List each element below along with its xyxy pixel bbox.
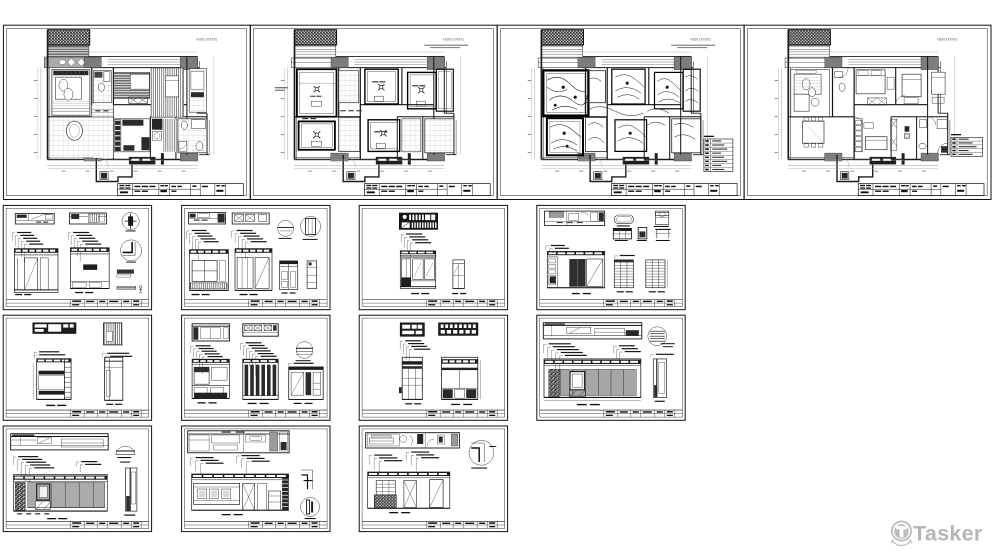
svg-text:H320 (XXXX): H320 (XXXX) [196,38,216,42]
svg-text:Tasker: Tasker [913,522,983,546]
svg-text:H320 (XXXX): H320 (XXXX) [443,38,463,42]
svg-text:H320 (XXXX): H320 (XXXX) [690,38,710,42]
svg-text:H320 (XXXX): H320 (XXXX) [937,38,957,42]
